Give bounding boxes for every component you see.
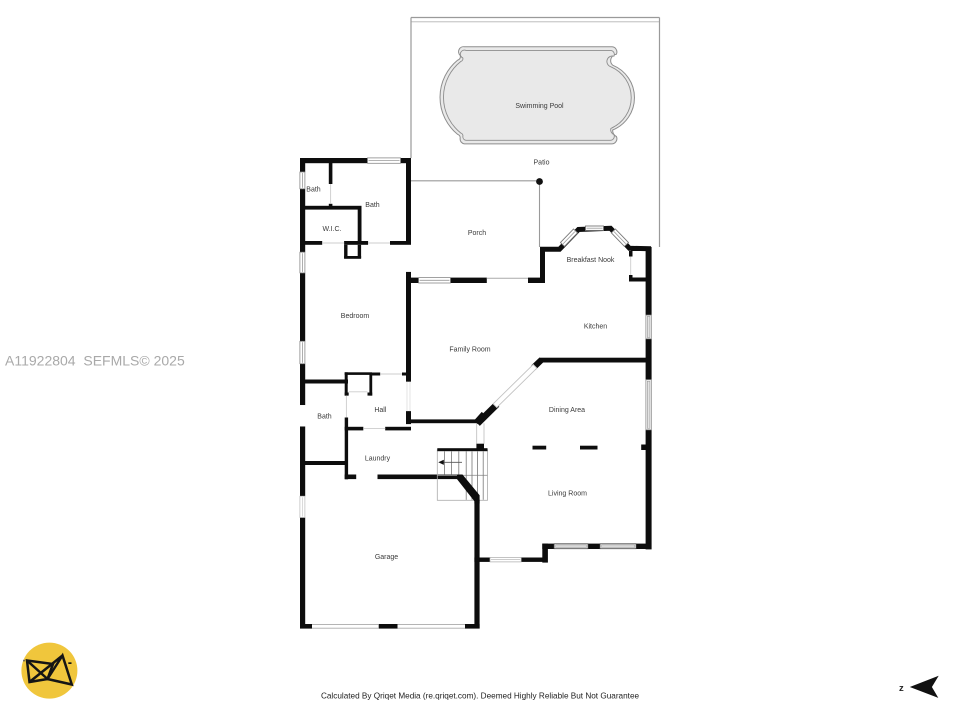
svg-text:Bedroom: Bedroom <box>341 313 370 320</box>
svg-text:Patio: Patio <box>534 160 550 167</box>
svg-text:Dining Area: Dining Area <box>549 407 585 414</box>
svg-text:Calculated By Qriqet Media (re: Calculated By Qriqet Media (re.qriqet.co… <box>321 692 640 701</box>
svg-text:Garage: Garage <box>375 554 398 561</box>
svg-text:Porch: Porch <box>468 230 486 237</box>
svg-text:Bath: Bath <box>365 202 380 209</box>
svg-text:Hall: Hall <box>374 407 387 414</box>
svg-text:Family Room: Family Room <box>449 347 490 354</box>
svg-text:Laundry: Laundry <box>365 456 391 463</box>
svg-text:Bath: Bath <box>306 187 321 194</box>
svg-text:Kitchen: Kitchen <box>584 324 607 331</box>
svg-text:z: z <box>899 683 904 694</box>
svg-text:W.I.C.: W.I.C. <box>322 226 341 233</box>
svg-text:Living Room: Living Room <box>548 491 587 498</box>
svg-text:Bath: Bath <box>317 413 332 420</box>
svg-text:Breakfast Nook: Breakfast Nook <box>567 257 615 264</box>
svg-text:Swimming Pool: Swimming Pool <box>515 103 564 110</box>
svg-text:A11922804 SEFMLS© 2025: A11922804 SEFMLS© 2025 <box>5 353 185 369</box>
